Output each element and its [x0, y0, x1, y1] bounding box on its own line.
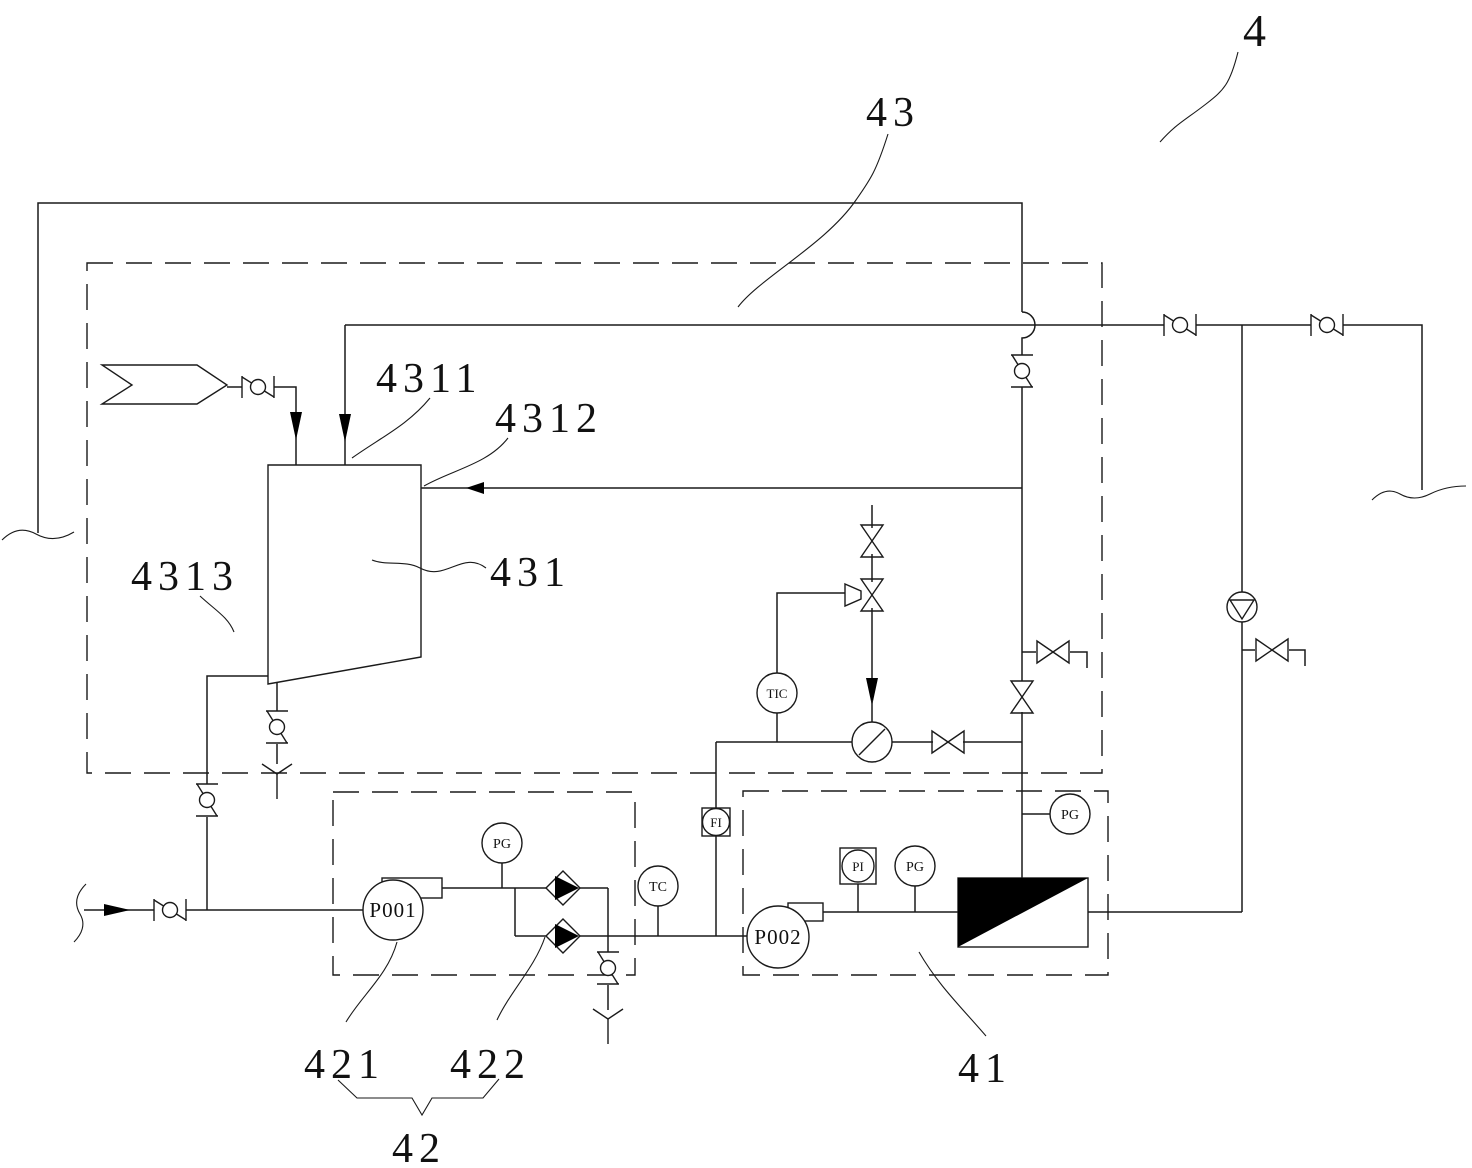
tic-control-loop: TIC: [716, 593, 1022, 762]
pressure-indicator-pi: PI: [840, 848, 876, 912]
label-4313: 4313: [131, 554, 239, 632]
valve-icon: [1164, 314, 1196, 336]
flow-indicator-fi: FI: [702, 742, 730, 936]
pump1-discharge-pipe: [442, 863, 747, 936]
svg-text:431: 431: [490, 550, 571, 596]
label-43: 43: [738, 90, 920, 307]
check-valve-icon: [546, 871, 580, 905]
label-42: 42: [338, 1079, 499, 1168]
label-421: 421: [304, 942, 397, 1088]
valve-icon: [266, 711, 288, 743]
check-valve-icon: [546, 919, 580, 953]
vessel-431: [268, 465, 421, 684]
label-422: 422: [450, 937, 545, 1088]
drain-funnel-icon: [262, 764, 292, 799]
valve-icon: [861, 525, 883, 557]
valve-icon: [597, 952, 619, 984]
pressure-gauge-pg3: PG: [1022, 794, 1090, 834]
valve-icon: [154, 899, 186, 921]
label-431: 431: [372, 550, 571, 596]
injection-line: [845, 505, 878, 722]
valve-icon: [1037, 641, 1069, 663]
svg-text:4313: 4313: [131, 554, 239, 600]
valve-icon: [1311, 314, 1343, 336]
label-41: 41: [919, 952, 1012, 1092]
pid-diagram: P001 PG TC FI P002: [0, 0, 1472, 1168]
pg2-tag: PG: [906, 860, 924, 875]
pressure-gauge-pg2: PG: [895, 846, 935, 912]
svg-text:41: 41: [958, 1046, 1012, 1092]
pump-p002: P002: [747, 903, 958, 968]
dashed-box-43: [87, 263, 1102, 773]
steam-inlet-flag: [102, 365, 302, 465]
valve-icon: [196, 784, 218, 816]
valve-icon: [1011, 355, 1033, 387]
pump-p002-tag: P002: [754, 925, 801, 949]
pg3-tag: PG: [1061, 808, 1079, 823]
outer-loop-pipe: [2, 203, 1035, 878]
pump-p001: P001: [363, 878, 442, 940]
svg-text:42: 42: [392, 1126, 446, 1168]
vessel-left-drain-pipe: [207, 676, 268, 910]
tic-tag: TIC: [767, 686, 788, 701]
feed-line: [74, 884, 363, 942]
valve-icon: [1011, 681, 1033, 713]
svg-text:421: 421: [304, 1042, 385, 1088]
pg1-tag: PG: [493, 837, 511, 852]
svg-text:4312: 4312: [495, 396, 603, 442]
svg-text:4311: 4311: [376, 356, 482, 402]
svg-text:422: 422: [450, 1042, 531, 1088]
pressure-gauge-pg1: PG: [482, 823, 522, 863]
temperature-controller-tc: TC: [638, 866, 678, 936]
svg-text:43: 43: [866, 90, 920, 136]
valve-icon: [1256, 639, 1288, 661]
label-4: 4: [1160, 5, 1268, 142]
valve-icon: [242, 376, 274, 398]
branch-valve-pipes: [1022, 650, 1305, 668]
label-4312: 4312: [424, 396, 603, 486]
svg-text:4: 4: [1243, 5, 1268, 56]
label-4311: 4311: [352, 356, 482, 458]
drain-funnel-icon: [593, 1009, 623, 1044]
tc-tag: TC: [649, 880, 667, 895]
membrane-module: [958, 878, 1242, 947]
pi-tag: PI: [852, 859, 864, 874]
return-riser-pipe: [1227, 325, 1257, 912]
control-valve-icon: [861, 579, 883, 611]
return-line-4312: [421, 482, 1022, 494]
pump-p001-tag: P001: [369, 898, 416, 922]
fi-tag: FI: [710, 815, 722, 830]
valve-icon: [932, 731, 964, 753]
